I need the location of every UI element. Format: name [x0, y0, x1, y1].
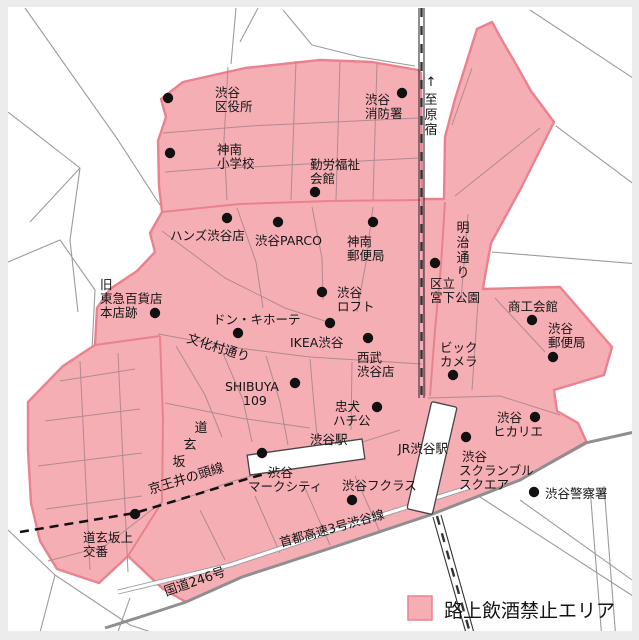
label-ikea: IKEA渋谷: [290, 335, 344, 350]
label-hachiko: ハチ公: [333, 413, 371, 428]
poi-dot: [527, 315, 537, 325]
label-shibuya-station: 渋谷駅: [310, 432, 348, 447]
label-seibu: 渋谷店: [357, 364, 395, 379]
poi-dot: [461, 432, 471, 442]
label-hikarie: 渋谷: [497, 410, 523, 425]
label-mark-city: マークシティ: [248, 479, 322, 494]
label-fukuras: 渋谷フクラス: [342, 478, 417, 493]
poi-dot: [363, 333, 373, 343]
poi-dot: [310, 187, 320, 197]
poi-dot: [273, 217, 283, 227]
poi-dot: [430, 258, 440, 268]
label-meiji-dori: 明: [456, 221, 469, 236]
label-scramble-square: スクエア: [459, 477, 509, 492]
label-bic-camera: ビック: [440, 340, 478, 355]
label-ward-office: 区役所: [215, 99, 253, 114]
label-to-harajuku: ↑: [426, 75, 437, 90]
poi-dot: [530, 412, 540, 422]
label-jr-station: JR渋谷駅: [397, 441, 448, 456]
label-bic-camera: カメラ: [440, 354, 478, 369]
label-meiji-dori: 通: [456, 251, 469, 266]
label-hands: ハンズ渋谷店: [170, 228, 245, 243]
poi-dot: [317, 287, 327, 297]
label-scramble-square: 渋谷: [462, 449, 488, 464]
poi-dot: [448, 370, 458, 380]
label-miyashita-park: 区立: [430, 276, 455, 291]
label-jinnan-post: 神南: [347, 234, 372, 249]
label-old-tokyu: 本店跡: [100, 305, 138, 320]
label-donki: ドン・キホーテ: [213, 312, 301, 327]
label-to-harajuku: 至: [424, 93, 437, 108]
label-jinnan-school: 神南: [217, 142, 242, 157]
label-to-harajuku: 原: [424, 108, 437, 123]
label-police: 渋谷警察署: [545, 486, 608, 501]
label-miyashita-park: 宮下公園: [430, 290, 480, 305]
legend-label: 路上飲酒禁止エリア: [444, 600, 615, 622]
label-shibuya109: SHIBUYA: [225, 379, 279, 394]
label-shibuya109: 109: [243, 393, 267, 408]
poi-dot: [368, 217, 378, 227]
legend-swatch: [408, 596, 432, 620]
poi-dot: [165, 148, 175, 158]
label-meiji-dori: り: [456, 266, 469, 281]
poi-dot: [163, 93, 173, 103]
label-to-harajuku: 宿: [424, 122, 437, 138]
label-fire-station: 渋谷: [365, 92, 391, 107]
label-labor-hall: 会館: [310, 171, 335, 186]
label-koban: 道玄坂上: [83, 530, 133, 545]
poi-dot: [290, 378, 300, 388]
label-old-tokyu: 東急百貨店: [100, 291, 163, 306]
label-labor-hall: 勤労福祉: [310, 157, 361, 172]
label-jinnan-post: 郵便局: [347, 248, 385, 263]
label-loft: 渋谷: [337, 285, 363, 300]
poi-dot: [150, 308, 160, 318]
label-parco: 渋谷PARCO: [255, 233, 322, 248]
poi-dot: [257, 448, 267, 458]
label-seibu: 西武: [357, 350, 383, 365]
label-dogenzaka: 坂: [172, 455, 185, 470]
poi-dot: [325, 318, 335, 328]
label-jinnan-school: 小学校: [217, 156, 255, 171]
label-hachiko: 忠犬: [335, 399, 361, 414]
label-loft: ロフト: [337, 299, 375, 314]
shibuya-no-drinking-area-map: 渋谷 区役所 神南 小学校 勤労福祉 会館 渋谷 消防署 ハンズ渋谷店 渋谷PA…: [0, 0, 639, 640]
poi-dot: [529, 487, 539, 497]
label-meiji-dori: 治: [456, 236, 469, 251]
map-canvas: 渋谷 区役所 神南 小学校 勤労福祉 会館 渋谷 消防署 ハンズ渋谷店 渋谷PA…: [0, 0, 639, 640]
label-shibuya-post: 渋谷: [548, 321, 574, 336]
poi-dot: [372, 402, 382, 412]
label-shibuya-post: 郵便局: [548, 335, 586, 350]
poi-dot: [233, 328, 243, 338]
label-dogenzaka: 道: [194, 421, 207, 436]
poi-dot: [347, 495, 357, 505]
label-shoko-kaikan: 商工会館: [508, 299, 558, 314]
label-dogenzaka: 玄: [183, 438, 196, 453]
label-old-tokyu: 旧: [100, 277, 113, 292]
poi-dot: [397, 88, 407, 98]
label-koban: 交番: [83, 544, 109, 559]
label-scramble-square: スクランブル: [459, 463, 534, 478]
poi-dot: [548, 352, 558, 362]
label-fire-station: 消防署: [365, 106, 403, 121]
poi-dot: [222, 213, 232, 223]
label-ward-office: 渋谷: [215, 85, 241, 100]
label-hikarie: ヒカリエ: [493, 424, 543, 439]
poi-dot: [130, 509, 140, 519]
label-mark-city: 渋谷: [268, 465, 294, 480]
